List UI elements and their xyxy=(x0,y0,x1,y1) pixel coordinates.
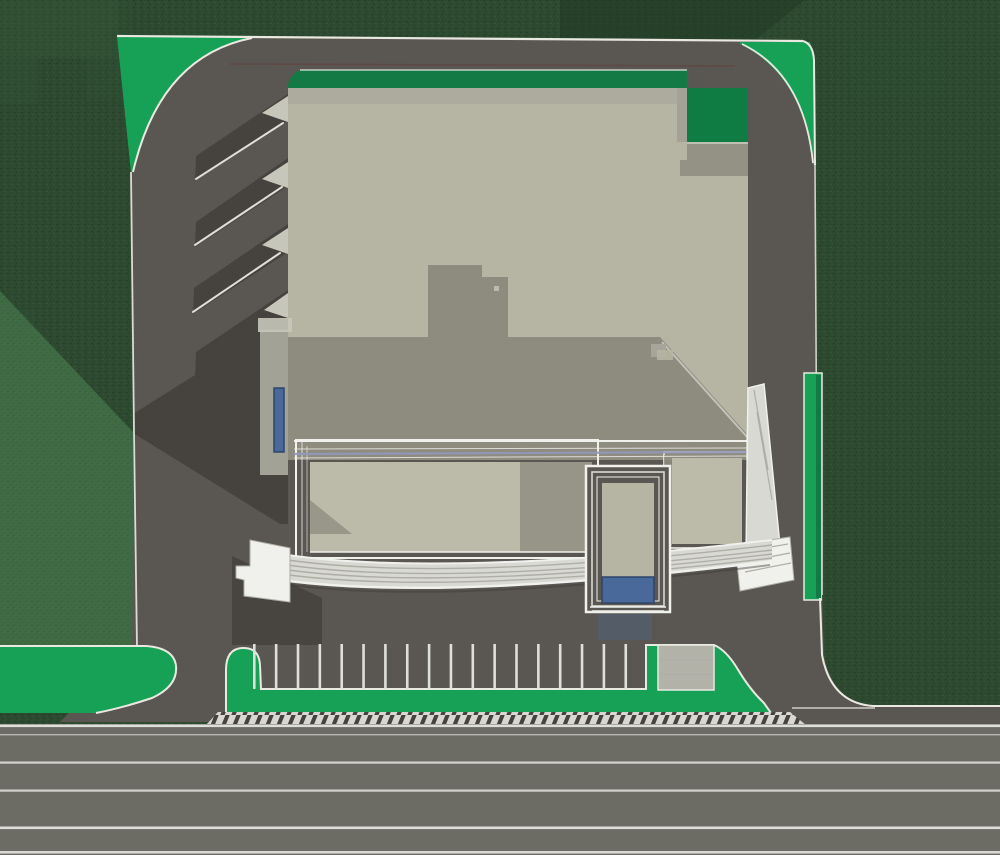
west-wall-block xyxy=(258,318,292,332)
road-lane-lines-item xyxy=(0,725,1000,728)
parking-stripes-item xyxy=(493,644,496,689)
parking-stripes-item xyxy=(297,644,300,689)
parking-stripes-item xyxy=(406,644,409,689)
canopy-shadow xyxy=(598,614,652,640)
southeast-planting-corner xyxy=(822,595,1000,705)
road-lane-lines-item xyxy=(0,762,1000,764)
parking-stripes-item xyxy=(450,644,453,689)
road-lane-lines-item xyxy=(0,827,1000,830)
parking-stripes-item xyxy=(275,644,278,689)
parking-stripes-item xyxy=(472,644,475,689)
parking-stripes-item xyxy=(537,644,540,689)
road-lane-lines-item xyxy=(0,734,1000,735)
ne-corner-wall-shade xyxy=(680,142,748,176)
utility-pad xyxy=(658,645,714,690)
hatched-sidewalk xyxy=(206,712,806,725)
rooftop-detail-dot xyxy=(494,286,499,291)
parking-stripes-item xyxy=(428,644,431,689)
parking-stripes-item xyxy=(340,644,343,689)
parking-stripes-item xyxy=(515,644,518,689)
roof-garden-notch xyxy=(687,88,748,142)
west-glass-slot xyxy=(274,388,284,452)
parking-stripes-item xyxy=(362,644,365,689)
parking-stripes-item xyxy=(581,644,584,689)
parking-stripes-item xyxy=(319,644,322,689)
parking-stripes-item xyxy=(603,644,606,689)
parking-stripes-item xyxy=(384,644,387,689)
site-plan-rendering xyxy=(0,0,1000,855)
notch-wall-band xyxy=(677,88,687,142)
east-hedge-strip xyxy=(804,373,822,600)
site-plan-svg xyxy=(0,0,1000,855)
parking-stripes-item xyxy=(559,644,562,689)
road-lane-lines-item xyxy=(0,790,1000,792)
road-lane-lines-item xyxy=(0,851,1000,854)
north-parapet-band xyxy=(288,88,677,104)
parking-stripes-item xyxy=(253,644,256,689)
blue-entrance-canopy xyxy=(602,577,654,603)
parking-stripes-item xyxy=(624,644,627,689)
north-planting-strip xyxy=(287,70,687,88)
entrance-tower xyxy=(586,466,670,612)
